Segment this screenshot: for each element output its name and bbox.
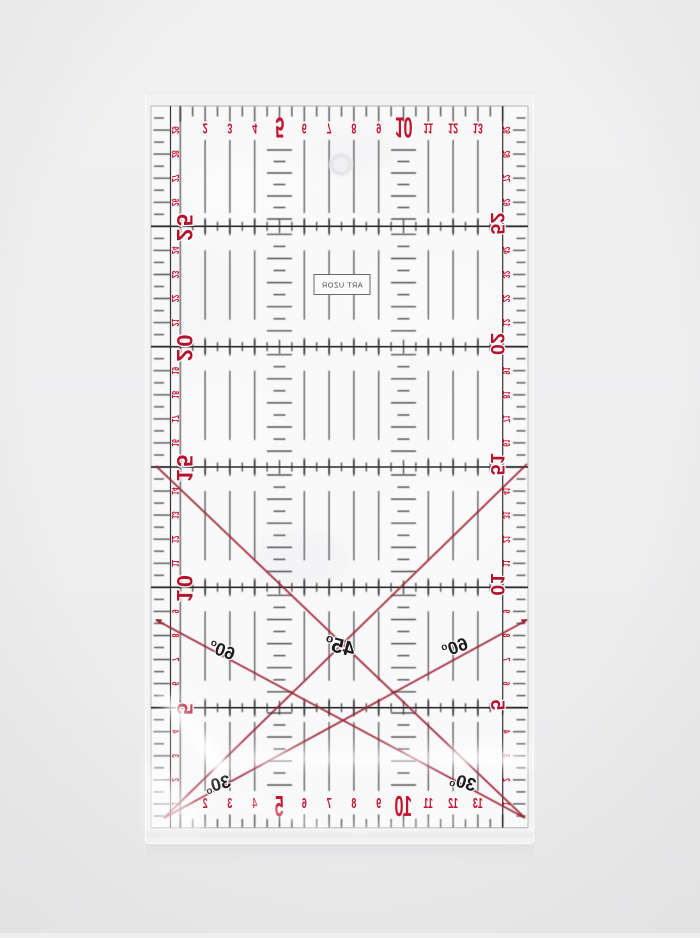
svg-text:51: 51 [486, 453, 508, 476]
svg-text:5: 5 [486, 699, 508, 710]
svg-text:8: 8 [170, 633, 182, 637]
svg-text:23: 23 [170, 271, 182, 279]
svg-text:5: 5 [275, 111, 284, 143]
svg-text:71: 71 [501, 415, 513, 423]
svg-text:29: 29 [170, 126, 182, 134]
svg-text:62: 62 [501, 198, 513, 206]
svg-text:61: 61 [501, 439, 513, 447]
svg-text:2: 2 [203, 120, 208, 137]
svg-text:ART UZOR: ART UZOR [321, 281, 362, 290]
svg-text:8: 8 [351, 120, 356, 137]
svg-text:10: 10 [172, 573, 197, 602]
svg-text:13: 13 [473, 795, 483, 812]
svg-text:92: 92 [501, 126, 513, 134]
svg-text:32: 32 [501, 271, 513, 279]
svg-text:18: 18 [170, 391, 182, 399]
svg-text:4: 4 [501, 730, 513, 734]
svg-text:01: 01 [486, 573, 508, 596]
svg-text:12: 12 [501, 319, 513, 327]
svg-text:82: 82 [501, 150, 513, 158]
svg-text:3: 3 [227, 120, 232, 137]
svg-text:20: 20 [172, 332, 197, 361]
svg-text:22: 22 [501, 295, 513, 303]
svg-text:42: 42 [501, 246, 513, 254]
svg-text:9: 9 [501, 609, 513, 613]
svg-text:25: 25 [172, 212, 197, 241]
svg-text:9: 9 [376, 120, 381, 137]
svg-text:81: 81 [501, 391, 513, 399]
svg-text:17: 17 [170, 415, 182, 423]
svg-text:16: 16 [170, 439, 182, 447]
svg-text:52: 52 [486, 212, 508, 235]
svg-text:91: 91 [501, 367, 513, 375]
svg-text:22: 22 [170, 295, 182, 303]
svg-text:21: 21 [501, 535, 513, 543]
svg-text:11: 11 [501, 560, 513, 567]
svg-text:6: 6 [302, 120, 307, 137]
svg-text:6: 6 [302, 795, 307, 812]
svg-text:7: 7 [327, 120, 332, 137]
svg-text:26: 26 [170, 198, 182, 206]
svg-text:11: 11 [424, 120, 434, 137]
svg-text:8: 8 [351, 795, 356, 812]
svg-text:31: 31 [501, 511, 513, 519]
svg-text:21: 21 [170, 319, 182, 327]
svg-text:02: 02 [486, 332, 508, 355]
svg-text:13: 13 [473, 120, 483, 137]
svg-text:19: 19 [170, 367, 182, 375]
svg-text:12: 12 [448, 120, 458, 137]
svg-text:10: 10 [395, 790, 412, 822]
svg-text:24: 24 [170, 246, 182, 254]
svg-text:28: 28 [170, 150, 182, 158]
svg-text:6: 6 [501, 682, 513, 686]
svg-text:13: 13 [170, 511, 182, 519]
svg-text:27: 27 [170, 174, 182, 182]
svg-text:7: 7 [170, 657, 182, 661]
svg-text:2: 2 [501, 778, 513, 782]
svg-text:7: 7 [501, 657, 513, 661]
svg-text:9: 9 [170, 609, 182, 613]
svg-text:11: 11 [423, 795, 433, 812]
svg-text:12: 12 [170, 535, 182, 543]
svg-text:11: 11 [170, 560, 182, 567]
svg-text:10: 10 [395, 111, 412, 143]
svg-text:4: 4 [252, 120, 257, 137]
svg-text:7: 7 [327, 795, 332, 812]
svg-text:12: 12 [448, 795, 458, 812]
svg-text:9: 9 [376, 795, 381, 812]
svg-text:72: 72 [501, 174, 513, 182]
svg-text:15: 15 [172, 452, 197, 481]
svg-text:6: 6 [170, 682, 182, 686]
